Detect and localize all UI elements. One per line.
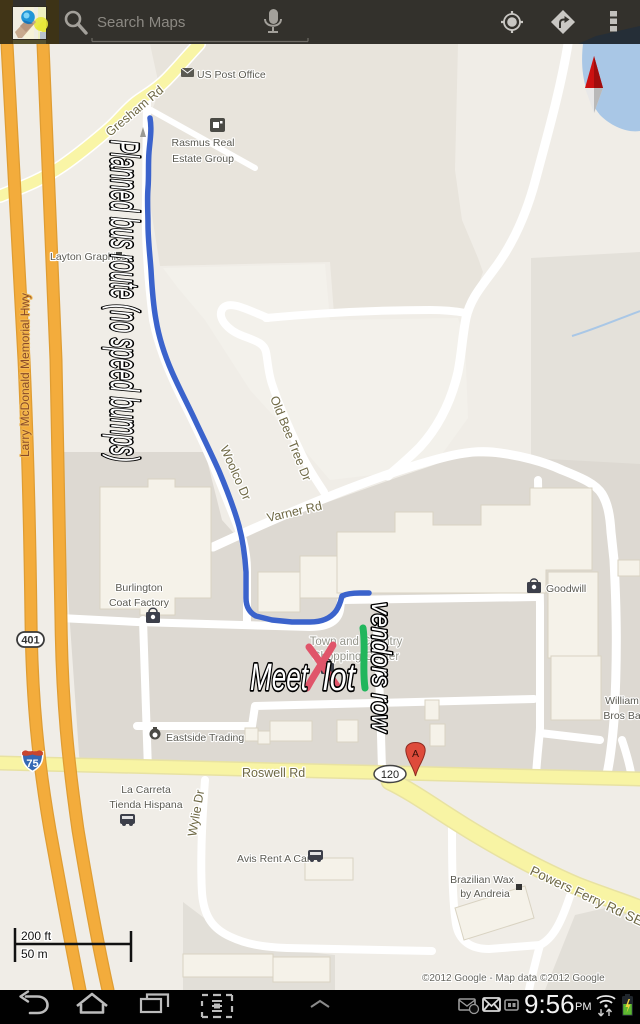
svg-text:William: William (605, 695, 639, 707)
svg-text:Goodwill: Goodwill (546, 583, 586, 595)
svg-text:vendors row: vendors row (366, 602, 397, 734)
svg-text:Estate Group: Estate Group (172, 153, 234, 165)
svg-text:by Andreia: by Andreia (460, 888, 510, 900)
svg-text:Coat Factory: Coat Factory (109, 597, 170, 609)
svg-text:US Post Office: US Post Office (197, 69, 266, 81)
svg-text:401: 401 (21, 635, 39, 647)
svg-text:Larry McDonald Memorial Hwy: Larry McDonald Memorial Hwy (18, 293, 32, 457)
svg-text:PM: PM (575, 1001, 592, 1013)
svg-text:Rasmus Real: Rasmus Real (171, 137, 234, 149)
svg-text:9:56: 9:56 (524, 990, 575, 1019)
svg-text:Avis Rent A Car: Avis Rent A Car (237, 853, 311, 865)
svg-text:lot: lot (323, 657, 356, 699)
svg-text:120: 120 (381, 769, 399, 781)
svg-text:La Carreta: La Carreta (121, 784, 171, 796)
svg-text:Search Maps: Search Maps (97, 14, 185, 31)
svg-text:A: A (412, 748, 419, 760)
svg-text:200 ft: 200 ft (21, 929, 52, 943)
svg-text:©2012 Google - Map data ©2012: ©2012 Google - Map data ©2012 Google (422, 973, 605, 984)
svg-text:75: 75 (26, 758, 38, 770)
svg-text:Burlington: Burlington (115, 582, 162, 594)
svg-text:Brazilian Wax: Brazilian Wax (450, 874, 515, 886)
svg-text:Eastside Trading: Eastside Trading (166, 732, 244, 744)
svg-text:Roswell Rd: Roswell Rd (242, 766, 305, 780)
svg-text:Planned bus route (no speed bu: Planned bus route (no speed bumps) (102, 140, 146, 462)
svg-text:Meet: Meet (250, 657, 309, 699)
svg-text:Tienda Hispana: Tienda Hispana (109, 799, 182, 811)
svg-text:50 m: 50 m (21, 947, 48, 961)
svg-text:Bros Ba: Bros Ba (603, 710, 640, 722)
